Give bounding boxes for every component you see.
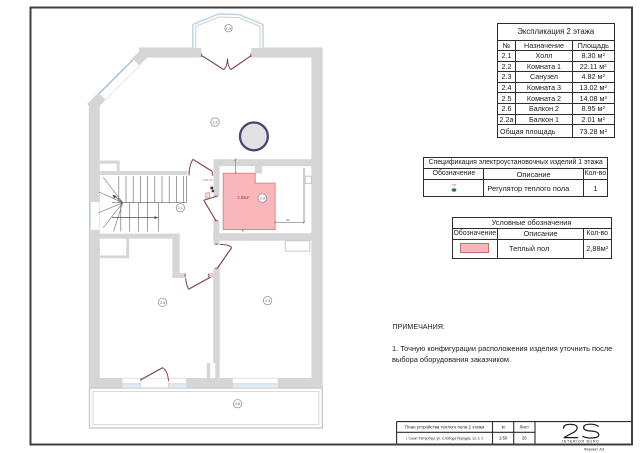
- svg-text:1:50: 1:50: [499, 435, 508, 440]
- svg-text:Формат А3: Формат А3: [584, 446, 605, 451]
- svg-text:26: 26: [522, 435, 527, 440]
- svg-text:м: м: [502, 425, 505, 430]
- svg-text:Лист: Лист: [520, 425, 530, 430]
- svg-text:План устройства теплого пола 2: План устройства теплого пола 2 этажа: [405, 425, 485, 430]
- svg-text:INTERIOR BURO: INTERIOR BURO: [562, 440, 600, 444]
- svg-text:г. Санкт-Петербург, ул. Слобод: г. Санкт-Петербург, ул. Слобода Порядка,…: [406, 436, 483, 440]
